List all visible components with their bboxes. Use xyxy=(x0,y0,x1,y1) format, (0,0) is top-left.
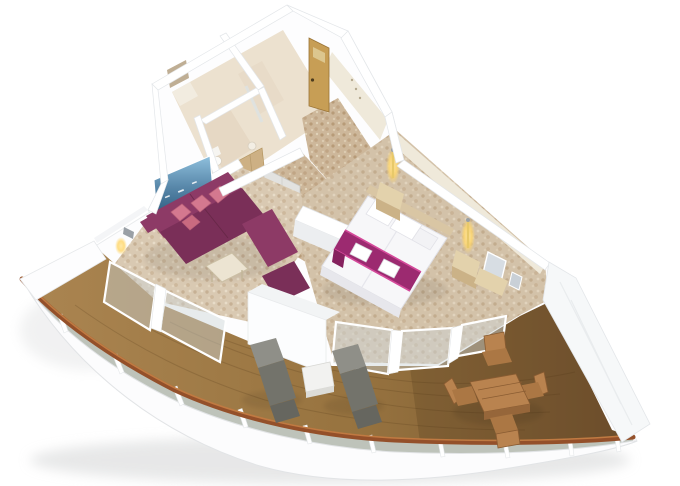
bedroom-window-2 xyxy=(398,328,452,370)
floorplan-render: 3D isometric rendering of a cruise-ship … xyxy=(0,0,680,486)
suite-3d-floorplan: 3D isometric rendering of a cruise-ship … xyxy=(0,0,680,486)
wall-lamp-right-cap xyxy=(466,218,470,222)
entry-door-handle xyxy=(311,78,314,81)
living-lamp-glow xyxy=(115,237,127,255)
entry-door xyxy=(309,38,329,112)
coat-hook-2 xyxy=(355,88,357,90)
coat-hook xyxy=(351,79,353,81)
coat-hook-3 xyxy=(359,97,361,99)
shower-drain xyxy=(248,142,256,150)
